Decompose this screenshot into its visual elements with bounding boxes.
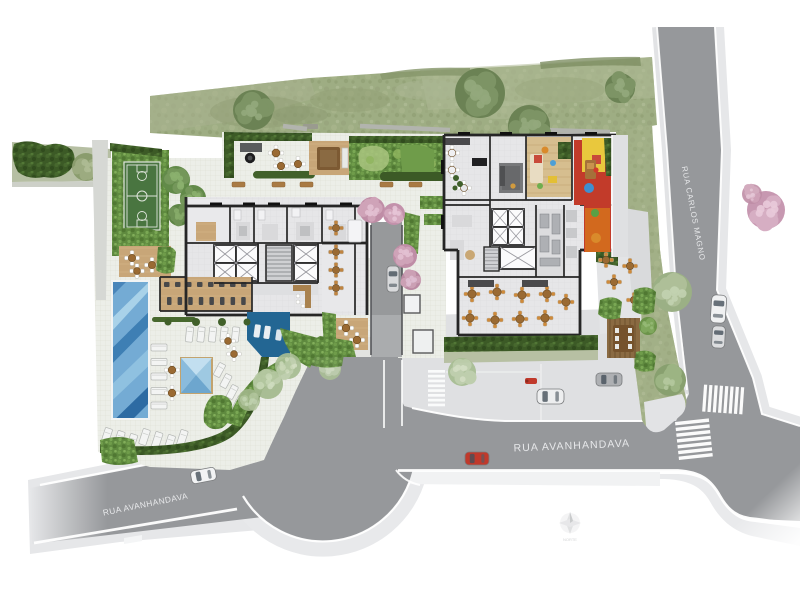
svg-text:NORTE: NORTE [563,537,577,542]
